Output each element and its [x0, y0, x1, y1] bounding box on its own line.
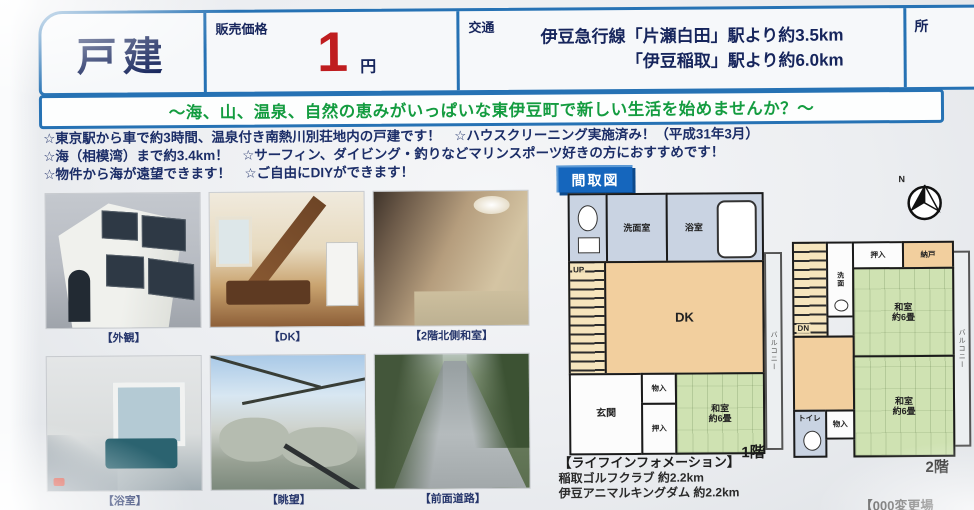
photo-cell-view: 【眺望】: [210, 354, 367, 508]
photo-caption: 【DK】: [210, 328, 366, 345]
room-wc-1f: [568, 193, 608, 263]
sink-fixture: [578, 237, 600, 253]
room-oshiire-2f: 押入: [852, 241, 904, 269]
photo-cell-dk: 【DK】: [209, 191, 366, 345]
photo-tatami-room: [373, 190, 530, 327]
bush-shape: [375, 354, 444, 488]
photo-caption: 【眺望】: [211, 491, 367, 508]
transport-label: 交通: [468, 17, 494, 36]
photo-cell-bathroom: 【浴室】: [46, 355, 203, 509]
room-dk: DK: [604, 260, 765, 375]
photo-cell-road: 【前面道路】: [374, 353, 531, 507]
bottom-partial-text: 【000変更場: [860, 495, 934, 510]
room-nando: 納戸: [902, 241, 954, 269]
room-washitsu-2f-a: 和室 約6畳: [852, 267, 955, 358]
photo-dining-kitchen: [209, 191, 366, 328]
toilet-fixture: [803, 431, 821, 451]
room-senmenshitsu: 洗面室: [606, 193, 668, 263]
room-bathroom-1f: 浴室: [666, 192, 764, 263]
life-information-item: 伊豆アニマルキングダム 約2.2km: [559, 485, 740, 501]
balcony-1f-label: バルコニー: [770, 331, 777, 371]
room-label: 洗面室: [623, 223, 650, 233]
catch-copy-text: ～海、山、温泉、自然の恵みがいっぱいな東伊豆町で新しい生活を始めませんか？～: [169, 95, 815, 124]
room-label: 和室 約6畳: [892, 396, 915, 416]
transport-cell: 交通 伊豆急行線「片瀬白田」駅より約3.5km 「伊豆稲取」駅より約6.0km: [459, 8, 907, 90]
property-type: 戸建: [76, 24, 168, 83]
window-shape: [216, 217, 252, 267]
branch-shape: [210, 354, 321, 389]
price-wrap: 1 円: [206, 11, 457, 92]
red-sticker: [54, 478, 65, 486]
price-cell: 販売価格 1 円: [206, 11, 460, 92]
room-washitsu-2f-b: 和室 約6畳: [853, 355, 956, 458]
room-label: 押入: [652, 425, 667, 433]
transport-lines: 伊豆急行線「片瀬白田」駅より約3.5km 「伊豆稲取」駅より約6.0km: [541, 23, 844, 75]
room-label: 浴室: [685, 222, 703, 232]
room-label: 洗面: [837, 272, 844, 288]
hall-2f: [793, 335, 856, 411]
tatami-floor-shape: [414, 291, 528, 326]
floorplan-2f: バルコニー DN 洗面 押入 納戸 和室 約6畳 和室 約6畳: [792, 241, 970, 458]
price-unit: 円: [360, 52, 376, 76]
window-shape: [113, 382, 185, 447]
property-type-cell: 戸建: [41, 13, 207, 93]
room-label: 押入: [870, 251, 885, 259]
table-shape: [226, 280, 310, 305]
room-label: DK: [675, 313, 694, 323]
floor1-label: 1階: [741, 441, 764, 462]
compass-n-label: N: [898, 174, 905, 184]
bathtub-shape: [105, 438, 177, 469]
room-label: 和室 約6畳: [892, 302, 915, 322]
stairs-dn-label: DN: [796, 324, 810, 334]
window-shape: [106, 254, 144, 288]
room-senmen-2f: 洗面: [826, 241, 855, 317]
window-shape: [148, 258, 194, 300]
fridge-shape: [326, 242, 358, 306]
ceiling-lamp-shape: [474, 196, 510, 214]
photo-front-road: [374, 353, 531, 490]
photo-caption: 【前面道路】: [375, 490, 531, 507]
location-label-partial: 所: [914, 16, 928, 36]
room-toilet-2f: トイレ: [793, 410, 827, 458]
photo-cell-tatami: 【2階北側和室】: [373, 190, 530, 344]
life-information-title: 【ライフインフォメーション】: [558, 454, 739, 471]
balcony-1f: バルコニー: [764, 252, 783, 450]
room-genkan: 玄関: [569, 373, 644, 456]
header-table: 戸建 販売価格 1 円 交通 伊豆急行線「片瀬白田」駅より約3.5km 「伊豆稲…: [38, 4, 974, 96]
stairs-1f: UP: [568, 261, 607, 375]
north-arrow-icon: [900, 180, 946, 224]
balcony-2f-label: バルコニー: [958, 329, 965, 369]
photo-cell-exterior: 【外観】: [45, 192, 202, 346]
transport-line-1: 伊豆急行線「片瀬白田」駅より約3.5km: [541, 23, 844, 50]
catch-copy-banner: ～海、山、温泉、自然の恵みがいっぱいな東伊豆町で新しい生活を始めませんか？～: [39, 89, 944, 129]
photo-grid: 【外観】 【DK】 【2階北側和室】: [45, 190, 539, 509]
life-information-item: 稲取ゴルフクラブ 約2.2km: [559, 470, 740, 486]
photo-caption: 【外観】: [46, 329, 202, 346]
stairs-up-label: UP: [572, 265, 585, 275]
photo-exterior: [45, 192, 202, 329]
room-label: 和室 約6畳: [709, 403, 732, 423]
basin-fixture: [834, 299, 848, 311]
transport-line-2: 「伊豆稲取」駅より約6.0km: [541, 48, 844, 75]
floorplan-badge-text: 間取図: [571, 170, 619, 190]
stairs-2f: DN: [792, 242, 829, 338]
price-value: 1: [317, 23, 349, 79]
room-monoire-1f: 物入: [641, 373, 677, 405]
flyer: 戸建 販売価格 1 円 交通 伊豆急行線「片瀬白田」駅より約3.5km 「伊豆稲…: [0, 0, 974, 510]
compass-icon: N: [900, 180, 946, 224]
window-shape: [102, 210, 138, 240]
bathtub-symbol: [717, 200, 757, 258]
highlights-block: ☆東京駅から車で約3時間、温泉付き南熱川別荘地内の戸建です！ ☆ハウスクリーニン…: [43, 124, 923, 184]
toilet-fixture: [578, 205, 598, 231]
photo-caption: 【浴室】: [47, 492, 203, 509]
photo-bathroom: [46, 355, 203, 492]
floorplan-1f: バルコニー 洗面室 浴室 UP DK 玄関 物入: [568, 192, 784, 455]
room-label: トイレ: [798, 415, 821, 423]
room-label: 物入: [833, 420, 848, 428]
photo-caption: 【2階北側和室】: [374, 327, 530, 344]
floor2-label: 2階: [925, 456, 948, 477]
room-label: 納戸: [920, 251, 935, 259]
room-monoire-2f: 物入: [825, 409, 855, 439]
tree-shape: [219, 417, 289, 461]
photo-view: [210, 354, 367, 491]
floorplan-badge: 間取図: [556, 165, 632, 193]
room-label: 玄関: [596, 409, 616, 419]
door-shape: [68, 270, 90, 322]
life-information-block: 【ライフインフォメーション】 稲取ゴルフクラブ 約2.2km 伊豆アニマルキング…: [558, 454, 740, 501]
window-shape: [142, 215, 186, 251]
flyer-photo: 戸建 販売価格 1 円 交通 伊豆急行線「片瀬白田」駅より約3.5km 「伊豆稲…: [0, 0, 974, 510]
room-label: 物入: [651, 385, 666, 393]
location-cell-partial: 所: [906, 8, 974, 88]
bush-shape: [467, 354, 529, 448]
room-oshiire-1f: 押入: [641, 403, 677, 455]
